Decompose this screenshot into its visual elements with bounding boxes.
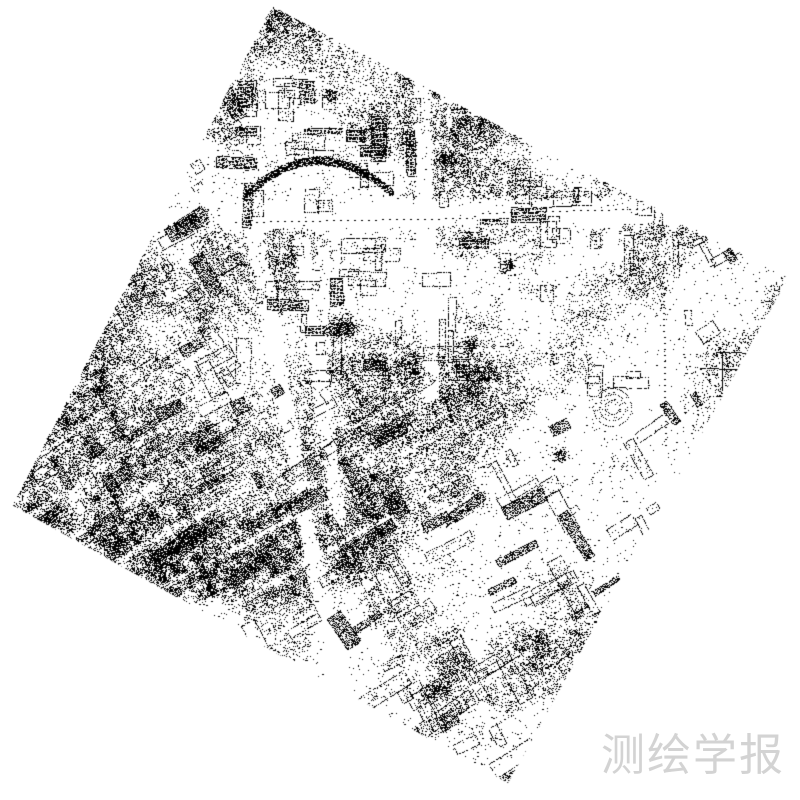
journal-watermark: 测绘学报 (601, 734, 785, 778)
stippled-aerial-image (0, 0, 800, 800)
page: 测绘学报 (0, 0, 800, 800)
